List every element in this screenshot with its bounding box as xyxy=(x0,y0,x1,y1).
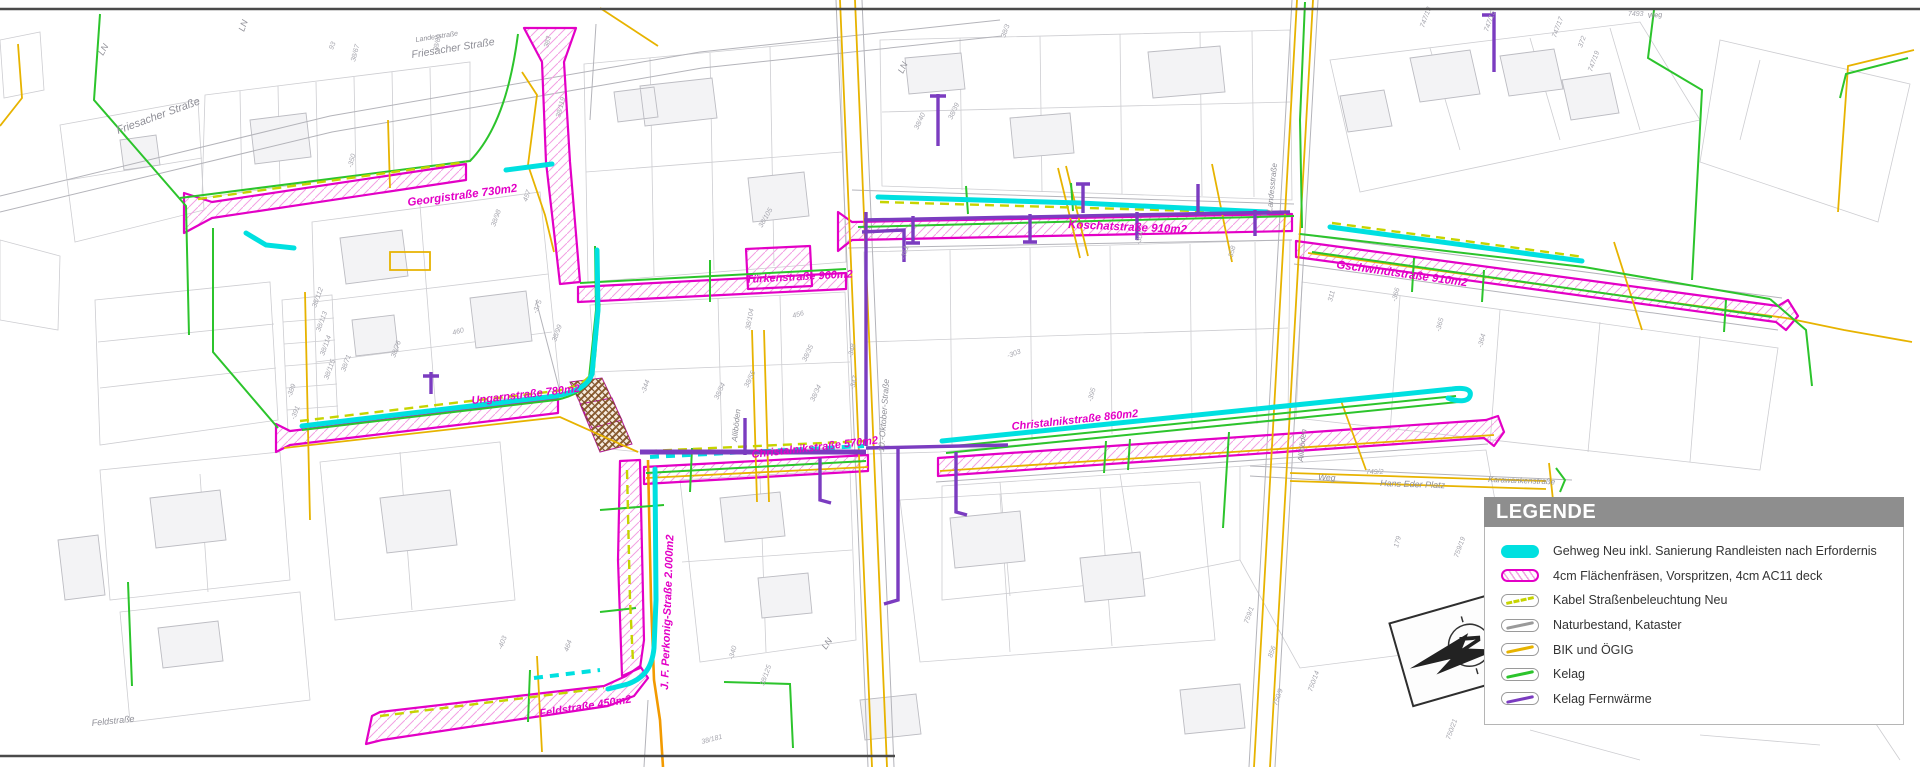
legend-swatch-bik-oegig xyxy=(1501,643,1539,656)
parcel-number-label: 460 xyxy=(452,327,465,337)
parcel-number-label: 759/1 xyxy=(1243,606,1256,625)
parcel-number-label: -303 xyxy=(1006,348,1022,359)
map-label: Feldstraße xyxy=(91,714,135,728)
gray-line-sample xyxy=(1506,621,1534,629)
map-label: Friesacher Straße xyxy=(115,95,202,136)
street-label: J. F. Perkonig-Straße 2.000m2 xyxy=(659,534,676,690)
map-label: Hans Eder Platz xyxy=(1380,478,1446,490)
parcel-number-label: 38/3 xyxy=(1000,23,1011,38)
parcel-number-label: 750/21 xyxy=(1445,718,1459,741)
parcel-number-label: 179 xyxy=(1393,535,1403,548)
district-heating-lines xyxy=(423,12,1494,604)
parcel-number-label: -340 xyxy=(728,645,738,660)
parcel-number-label: 456 xyxy=(792,310,805,320)
parcel-number-label: 747/17 xyxy=(1551,15,1565,39)
parcel-number-label: 464 xyxy=(563,639,574,652)
legend-item-label: Kelag xyxy=(1553,667,1585,681)
parcel-number-label: -375 xyxy=(532,299,543,315)
yellow-line-sample xyxy=(1506,645,1534,653)
legend-swatch-fernwaerme xyxy=(1501,692,1539,705)
map-label: Landesstraße xyxy=(1265,162,1279,212)
parcel-number-label: 7493 xyxy=(1628,11,1644,18)
parcel-number-label: -347 xyxy=(849,374,860,390)
parcel-number-label: 38/34 xyxy=(809,384,823,403)
legend-item: Kelag xyxy=(1485,662,1903,687)
legend-item: Kabel Straßenbeleuchtung Neu xyxy=(1485,588,1903,613)
green-line-sample xyxy=(1506,670,1534,678)
map-label: Weg xyxy=(1318,472,1336,483)
parcel-number-label: 38/181 xyxy=(701,734,724,746)
legend-item-label: Naturbestand, Kataster xyxy=(1553,618,1682,632)
parcel-number-label: 38/71 xyxy=(340,354,353,373)
parcel-number-label: -344 xyxy=(640,379,651,395)
map-label: LN xyxy=(236,18,250,33)
parcel-number-label: 372 xyxy=(1577,35,1588,48)
legend-item: BIK und ÖGIG xyxy=(1485,637,1903,662)
parcel-number-label: 38/112 xyxy=(311,287,325,309)
map-label: LN xyxy=(819,636,834,652)
parcel-number-label: -364 xyxy=(1477,333,1487,348)
parcel-number-label: -365 xyxy=(1435,317,1445,332)
parcel-number-label: -348 xyxy=(847,343,857,358)
legend-item-label: Gehweg Neu inkl. Sanierung Randleisten n… xyxy=(1553,544,1877,558)
legend-item: Naturbestand, Kataster xyxy=(1485,613,1903,638)
legend-item-label: Kelag Fernwärme xyxy=(1553,692,1652,706)
parcel-number-label: -403 xyxy=(497,635,508,651)
parcel-number-label: 750/14 xyxy=(1307,670,1321,693)
parcel-number-label: -389 xyxy=(286,383,297,399)
legend-item: 4cm Flächenfräsen, Vorspritzen, 4cm AC11… xyxy=(1485,564,1903,589)
legend-swatch-gehweg-neu xyxy=(1501,545,1539,558)
parcel-number-label: 759/19 xyxy=(1453,536,1467,559)
parcel-number-label: -391 xyxy=(290,405,301,421)
parcel-number-label: 93 xyxy=(328,41,337,51)
legend-title: LEGENDE xyxy=(1484,497,1904,527)
legend-body: Gehweg Neu inkl. Sanierung Randleisten n… xyxy=(1484,527,1904,725)
map-label: Karawankenstraße xyxy=(1488,475,1556,486)
legend-swatch-naturbestand xyxy=(1501,619,1539,632)
parcel-number-label: 749/2 xyxy=(1366,469,1384,476)
parcel-number-label: 38/113 xyxy=(315,311,329,333)
parcel-number-label: 38/40 xyxy=(913,112,927,131)
legend-item-label: BIK und ÖGIG xyxy=(1553,643,1634,657)
legend-item-label: 4cm Flächenfräsen, Vorspritzen, 4cm AC11… xyxy=(1553,569,1822,583)
legend-panel: LEGENDE Gehweg Neu inkl. Sanierung Randl… xyxy=(1484,497,1904,725)
parcel-number-label: 38/104 xyxy=(745,308,756,330)
legend-swatch-kelag xyxy=(1501,668,1539,681)
legend-item: Kelag Fernwärme xyxy=(1485,687,1903,712)
legend-item-label: Kabel Straßenbeleuchtung Neu xyxy=(1553,593,1727,607)
parcel-number-label: 457 xyxy=(522,188,533,202)
parcel-number-label: 38/98 xyxy=(490,209,503,228)
parcel-number-label: 38/39 xyxy=(947,102,961,121)
parcel-number-label: 38/115 xyxy=(323,359,337,381)
parcel-number-label: 38/35 xyxy=(801,344,815,363)
legend-swatch-kabel xyxy=(1501,594,1539,607)
site-plan-canvas: 38/6738/6938/119383-35038/7138/11238/113… xyxy=(0,0,1920,767)
map-label: Weg xyxy=(1648,12,1663,20)
parcel-number-label: 38/54 xyxy=(713,382,727,401)
purple-line-sample xyxy=(1506,695,1534,703)
parcel-number-label: 38/114 xyxy=(319,335,333,357)
parcel-number-label: -395 xyxy=(1087,387,1097,402)
legend-swatch-flaechenfraesen xyxy=(1501,569,1539,582)
parcel-number-label: 747/19 xyxy=(1587,50,1601,73)
map-label: Alliböden xyxy=(730,408,743,443)
dashed-line-sample xyxy=(1506,596,1534,605)
legend-item: Gehweg Neu inkl. Sanierung Randleisten n… xyxy=(1485,539,1903,564)
parcel-number-label: 311 xyxy=(1327,290,1337,303)
parcel-number-label: 38/67 xyxy=(350,43,362,63)
parcel-number-label: 38/55 xyxy=(743,370,757,389)
